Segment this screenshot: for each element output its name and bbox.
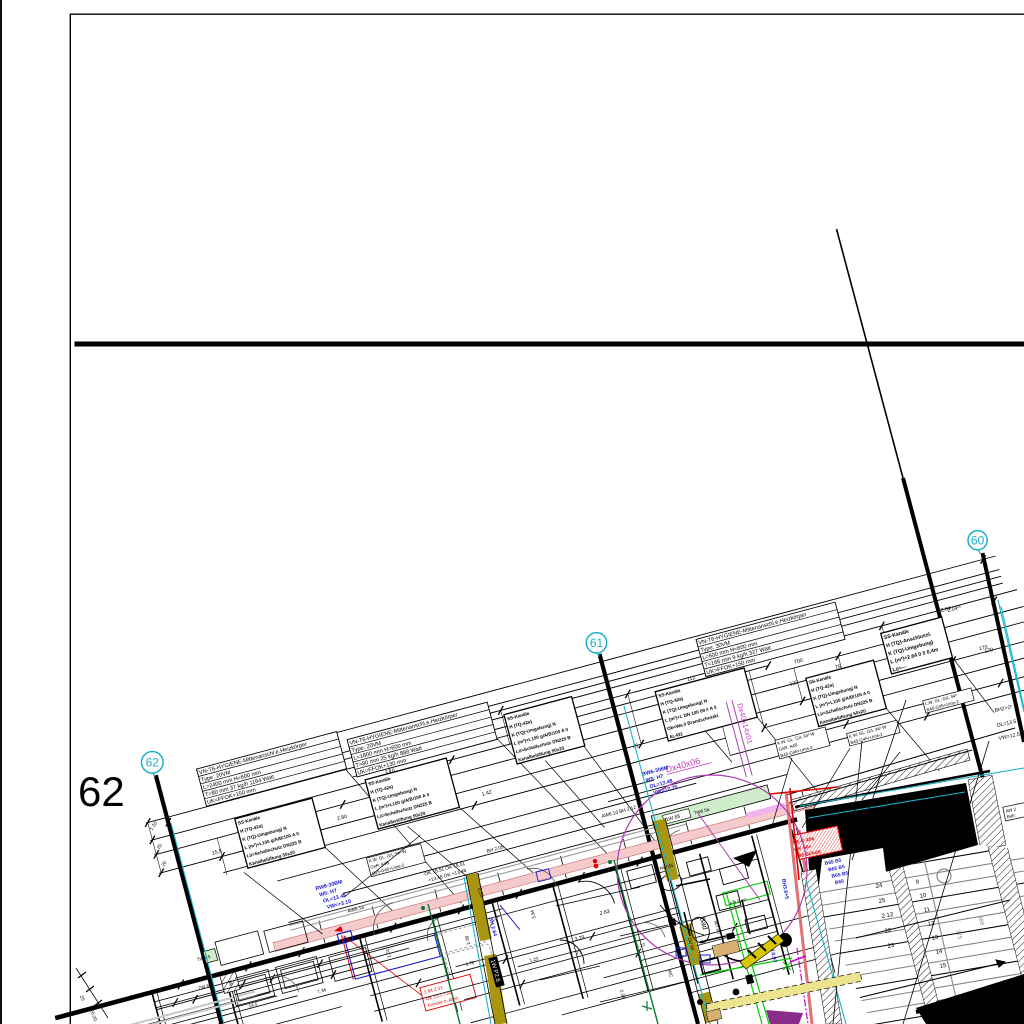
svg-text:62: 62 [78,768,125,815]
svg-text:61: 61 [590,636,604,650]
svg-text:60: 60 [971,533,985,547]
svg-text:62: 62 [146,756,160,770]
